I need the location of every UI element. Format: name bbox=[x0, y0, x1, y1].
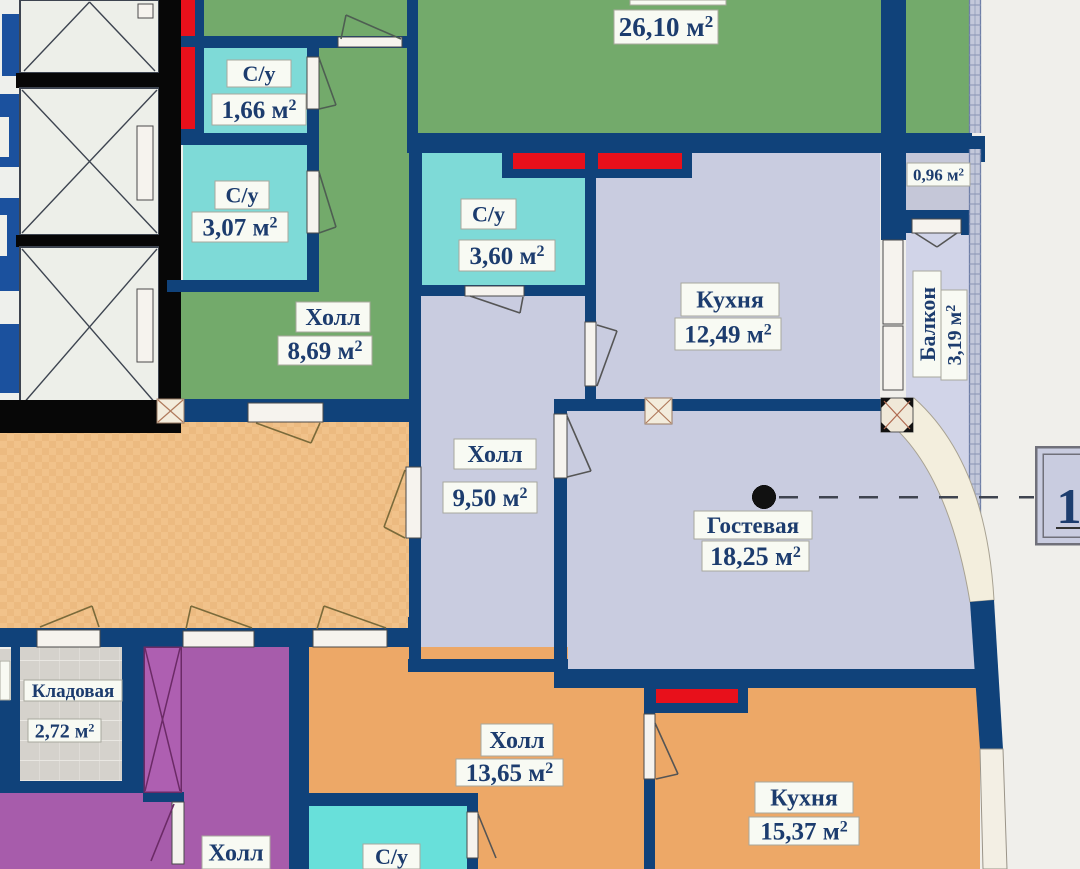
svg-text:3,19 м2: 3,19 м2 bbox=[944, 305, 966, 366]
svg-text:С/у: С/у bbox=[243, 61, 276, 86]
svg-text:Холл: Холл bbox=[467, 442, 522, 468]
svg-text:1,66 м2: 1,66 м2 bbox=[221, 97, 296, 124]
svg-text:Кухня: Кухня bbox=[770, 786, 838, 812]
svg-text:С/у: С/у bbox=[226, 182, 259, 207]
svg-text:1: 1 bbox=[1057, 478, 1080, 534]
svg-text:12,49 м2: 12,49 м2 bbox=[684, 322, 772, 349]
svg-text:0,96 м2: 0,96 м2 bbox=[913, 165, 965, 184]
svg-text:С/у: С/у bbox=[375, 844, 408, 869]
svg-text:Кухня: Кухня bbox=[696, 288, 764, 314]
svg-text:26,10 м2: 26,10 м2 bbox=[619, 12, 713, 42]
svg-text:Холл: Холл bbox=[489, 728, 544, 754]
svg-text:Кладовая: Кладовая bbox=[32, 681, 115, 702]
svg-text:Холл: Холл bbox=[305, 305, 360, 331]
svg-text:3,60 м2: 3,60 м2 bbox=[469, 243, 544, 270]
svg-text:Балкон: Балкон bbox=[915, 287, 940, 361]
svg-text:13,65 м2: 13,65 м2 bbox=[466, 760, 554, 787]
svg-text:С/у: С/у bbox=[472, 201, 505, 226]
svg-text:18,25 м2: 18,25 м2 bbox=[710, 542, 801, 571]
svg-text:15,37 м2: 15,37 м2 bbox=[760, 819, 848, 846]
svg-text:9,50 м2: 9,50 м2 bbox=[452, 485, 527, 512]
svg-text:2,72 м2: 2,72 м2 bbox=[35, 720, 95, 742]
svg-text:Гостевая: Гостевая bbox=[707, 513, 799, 538]
svg-text:3,07 м2: 3,07 м2 bbox=[202, 215, 277, 242]
svg-text:8,69 м2: 8,69 м2 bbox=[287, 338, 362, 365]
svg-text:Холл: Холл bbox=[208, 841, 263, 867]
